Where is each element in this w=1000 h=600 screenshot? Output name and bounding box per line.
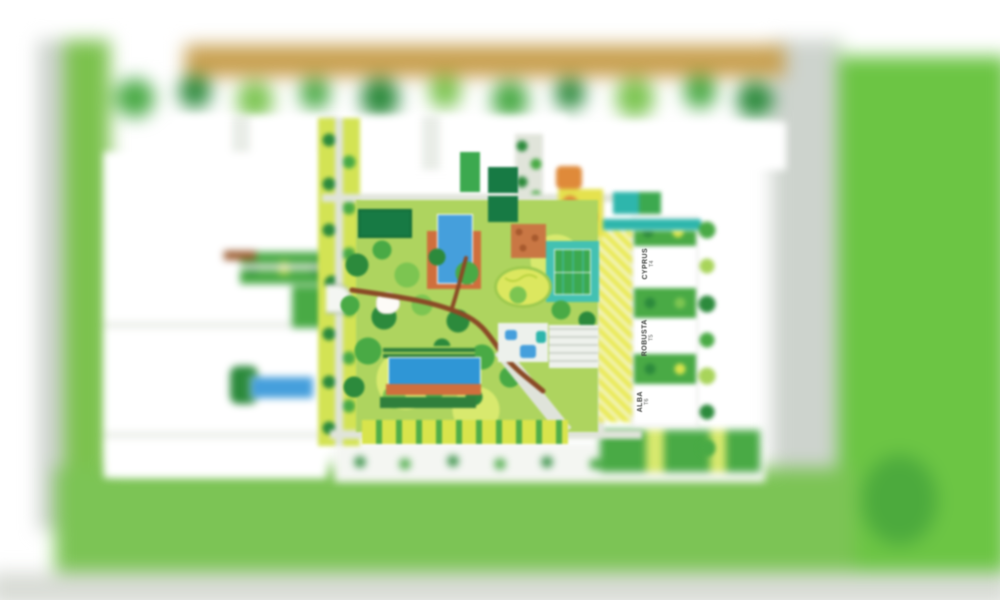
- tower-code: T6: [645, 399, 651, 405]
- tower-code: T5: [649, 335, 655, 341]
- master-plan-photo: CYPRUS T4 ROBUSTA T5 ALBA T6: [0, 0, 1000, 600]
- tower-name: ROBUSTA: [641, 320, 648, 357]
- label-layer: CYPRUS T4 ROBUSTA T5 ALBA T6: [0, 0, 1000, 600]
- tower-code: T4: [650, 261, 656, 267]
- tower-label-alba: ALBA T6: [632, 380, 656, 424]
- tower-label-robusta: ROBUSTA T5: [636, 315, 660, 361]
- tower-label-cyprus: CYPRUS T4: [637, 241, 661, 287]
